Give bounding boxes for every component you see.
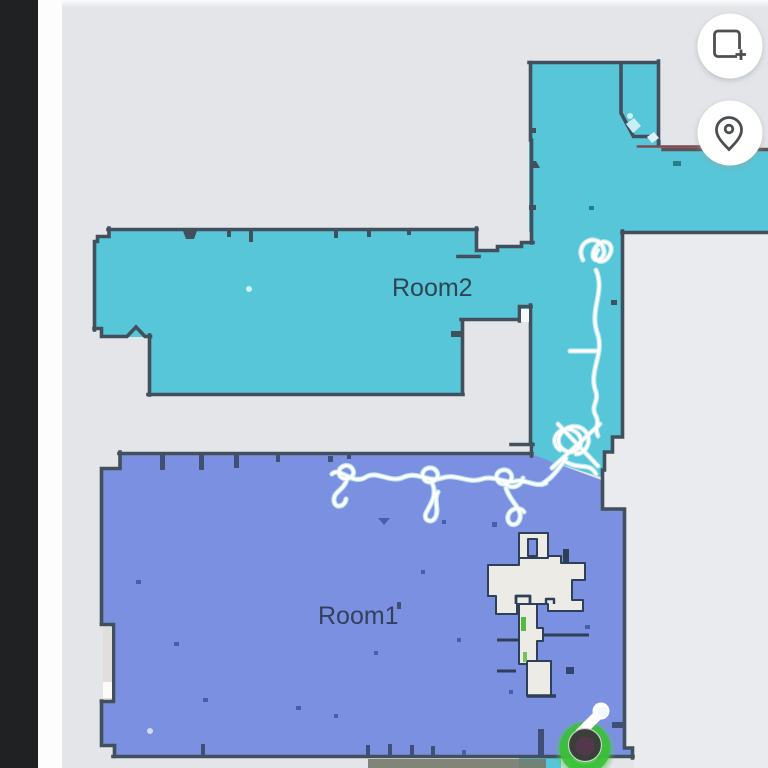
svg-text:Room1: Room1 <box>318 602 399 630</box>
svg-text:Room2: Room2 <box>392 274 473 302</box>
